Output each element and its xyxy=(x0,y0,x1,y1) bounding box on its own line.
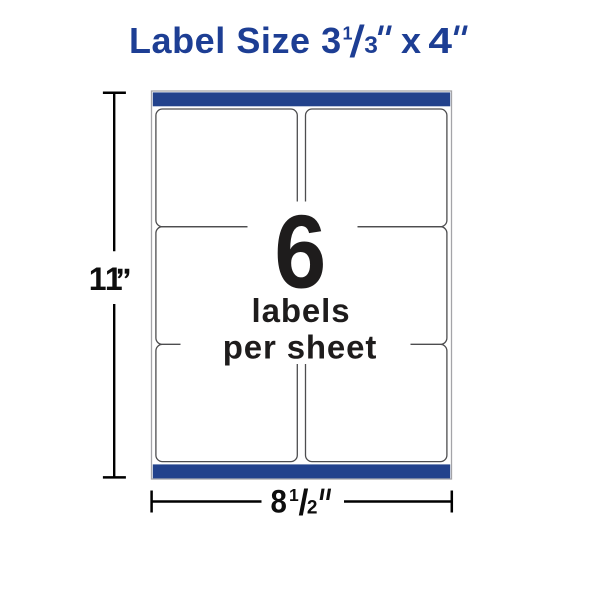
svg-text:labels: labels xyxy=(252,292,351,329)
svg-text:Label Size 3: Label Size 3 xyxy=(129,20,342,61)
svg-text:2: 2 xyxy=(307,498,318,519)
svg-text:1: 1 xyxy=(343,23,353,43)
svg-text:4: 4 xyxy=(428,21,452,61)
svg-text:11: 11 xyxy=(89,261,123,297)
svg-text:1: 1 xyxy=(289,485,299,505)
svg-text:per sheet: per sheet xyxy=(223,329,377,366)
svg-text:x: x xyxy=(401,20,421,61)
svg-text:8: 8 xyxy=(271,483,287,519)
svg-text:3: 3 xyxy=(364,32,378,59)
